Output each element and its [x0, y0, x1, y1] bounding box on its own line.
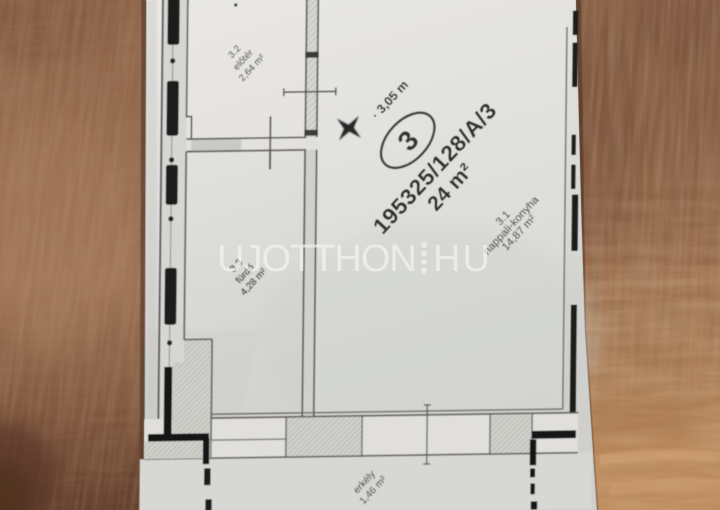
svg-text:UJOTTHON: UJOTTHON: [217, 238, 416, 280]
svg-text:HU: HU: [433, 238, 492, 280]
